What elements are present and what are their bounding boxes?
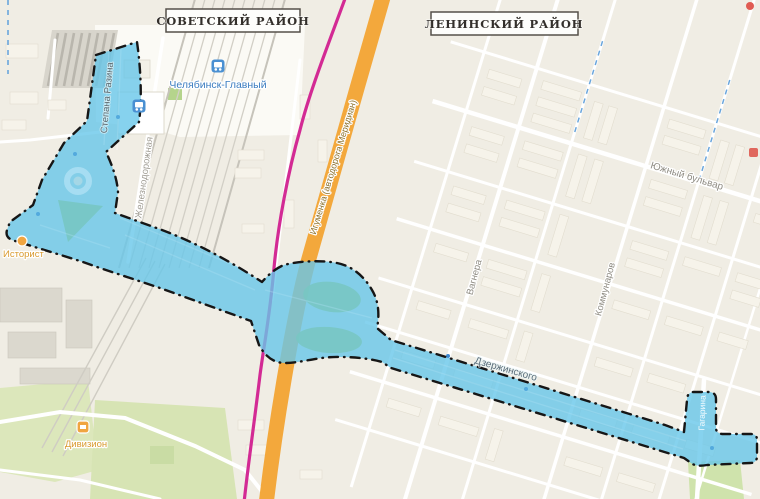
district-label-sovetsky-text: СОВЕТСКИЙ РАЙОН [156,13,309,28]
district-label-sovetsky: СОВЕТСКИЙ РАЙОН [156,9,309,32]
district-label-leninsky: ЛЕНИНСКИЙ РАЙОН [425,12,584,35]
district-label-leninsky-text: ЛЕНИНСКИЙ РАЙОН [425,16,584,31]
red-poi-icon [749,148,758,157]
street-label-gagarina: Гагарина [696,395,707,431]
poi-label-istorist: Историст [3,249,44,260]
poi-label-division: Дивизион [65,439,107,450]
division-poi-icon [77,421,89,433]
train-station-icon [133,100,146,113]
city-map: Степана Разина Железнодорожная Игуменка … [0,0,760,499]
map-screenshot: Степана Разина Железнодорожная Игуменка … [0,0,760,499]
istorist-poi-icon [17,236,27,246]
station-label: Челябинск-Главный [169,79,266,91]
train-station-icon [212,60,225,73]
red-poi-icon [746,2,754,10]
